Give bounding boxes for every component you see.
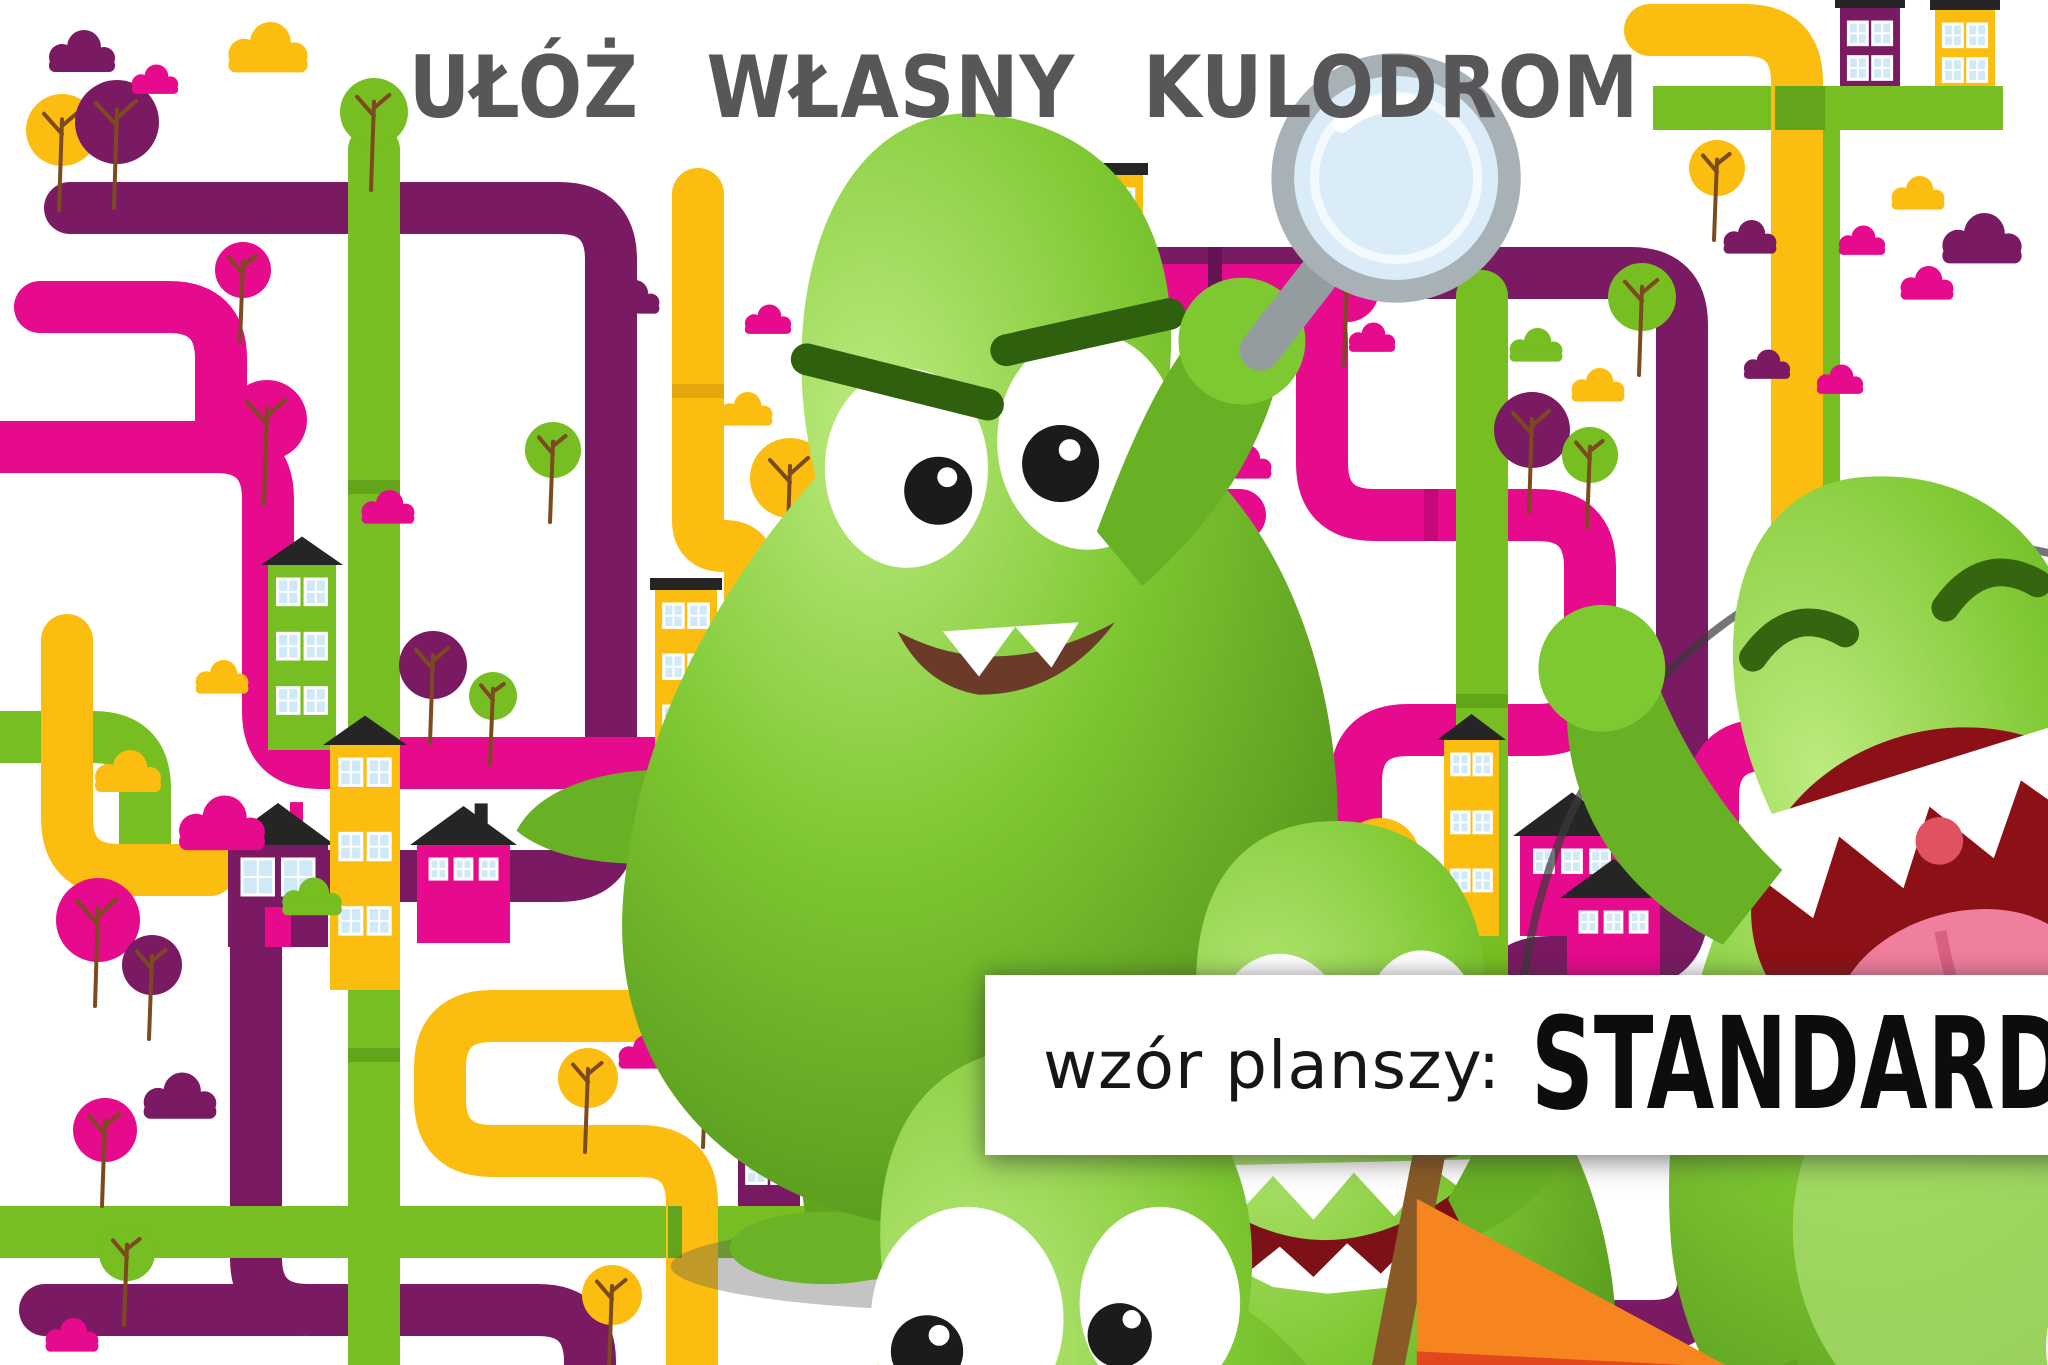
cloud (1942, 213, 2021, 263)
cloud (1839, 226, 1885, 255)
track-joint (348, 1048, 400, 1062)
illustration (0, 0, 2048, 1365)
scene-canvas: UŁÓŻ WŁASNY KULODROM wzór planszy: STAND… (0, 0, 2048, 1365)
cloud (1572, 368, 1625, 402)
cloud (49, 30, 115, 72)
cloud (179, 796, 265, 851)
bush-base (282, 904, 341, 916)
house-yellow-topright (1930, 0, 2000, 86)
cloud-base (607, 303, 660, 313)
track-joint (668, 1206, 682, 1258)
cloud-base (1892, 199, 1945, 209)
house-yellow-tall (323, 716, 407, 990)
cloud-base (677, 371, 723, 380)
tree (399, 631, 467, 743)
headline: UŁÓŻ WŁASNY KULODROM (123, 38, 1925, 138)
roof (1930, 0, 2000, 10)
cloud-base (745, 325, 791, 334)
roof (410, 806, 517, 845)
cloud (1510, 328, 1563, 362)
cloud-base (46, 1341, 99, 1351)
track-joint (672, 384, 724, 398)
cloud (1349, 323, 1395, 352)
cloud (745, 305, 791, 334)
cloud-base (1572, 391, 1625, 401)
tree (56, 878, 140, 1006)
board-pattern-banner: wzór planszy: STANDARD (985, 975, 2048, 1155)
cloud-base (49, 59, 115, 72)
cloud-base (179, 833, 265, 850)
tree (73, 1098, 137, 1206)
track-magenta-detective-stand (40, 307, 221, 440)
roof (1835, 0, 1905, 8)
cloud (1901, 266, 1954, 300)
cloud-base (1817, 385, 1863, 394)
roof (650, 578, 722, 590)
cloud-base (1901, 289, 1954, 299)
banner-value: STANDARD (1531, 989, 2048, 1138)
cloud (196, 660, 249, 694)
cloud (720, 392, 773, 426)
banner-label: wzór planszy: (1043, 1027, 1501, 1104)
tree (122, 935, 182, 1039)
cloud-base (144, 1104, 217, 1118)
house-wall (1567, 898, 1660, 978)
cloud-base (95, 779, 161, 792)
house-magenta-cottage (410, 803, 517, 943)
cloud (1892, 176, 1945, 210)
cloud-base (1724, 243, 1777, 253)
track-joint (1424, 489, 1438, 541)
tree (1689, 140, 1745, 240)
tree (525, 422, 581, 522)
cloud-base (362, 513, 415, 523)
track-joint (1456, 694, 1508, 708)
cloud-base (1839, 246, 1885, 255)
cloud-base (1510, 351, 1563, 361)
house-green-tall (261, 536, 343, 750)
cloud (144, 1073, 217, 1119)
cloud-base (1942, 248, 2021, 264)
cloud-base (1744, 370, 1790, 379)
cloud-base (1349, 343, 1395, 352)
cloud-base (196, 683, 249, 693)
cloud-base (720, 415, 773, 425)
cloud (1724, 220, 1777, 254)
